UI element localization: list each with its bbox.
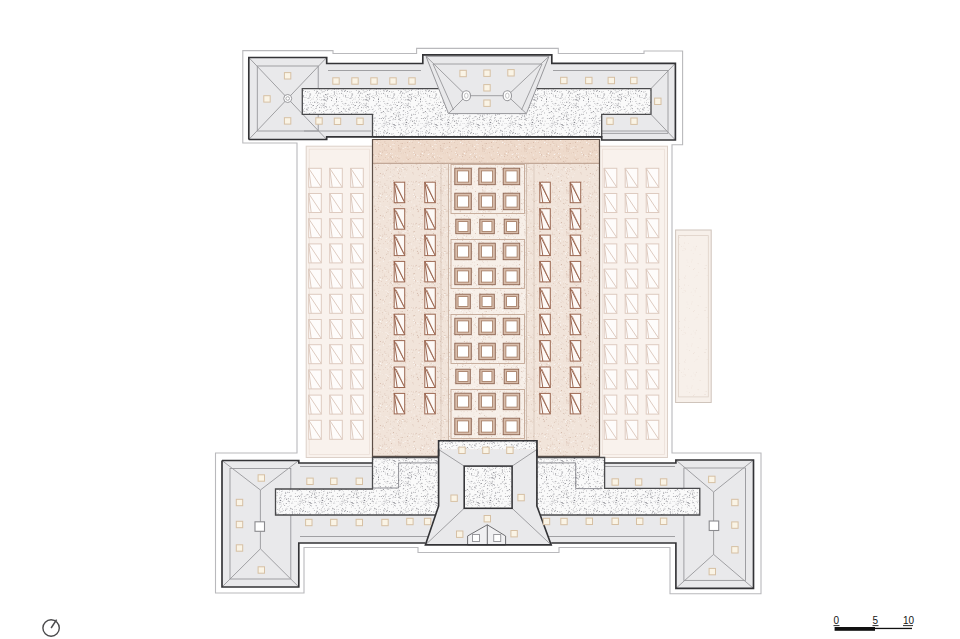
svg-text:5: 5 — [873, 615, 879, 626]
svg-text:0: 0 — [834, 615, 840, 626]
svg-text:10: 10 — [903, 615, 915, 626]
